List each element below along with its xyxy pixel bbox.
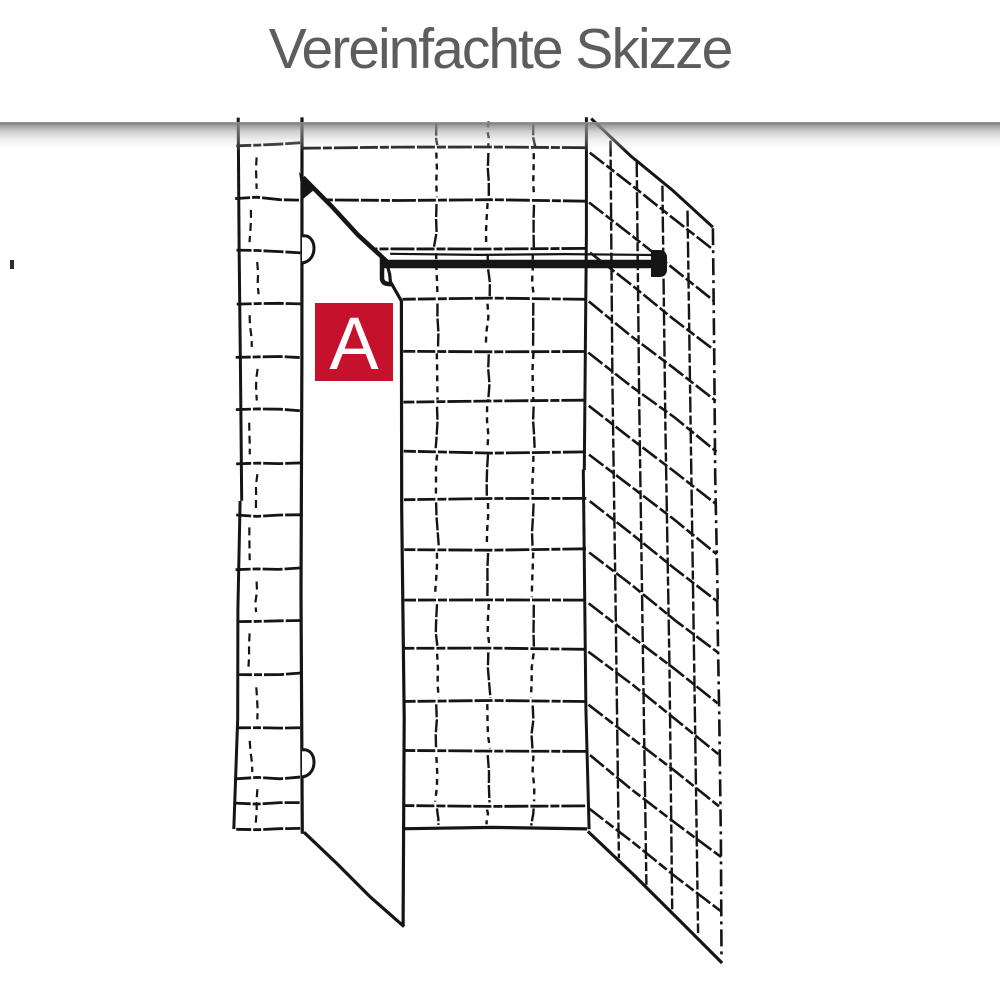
sketch-canvas: A	[0, 0, 1000, 1000]
page: Vereinfachte Skizze A	[0, 0, 1000, 1000]
panel-label: A	[329, 302, 379, 385]
sketch: A	[0, 0, 1000, 1000]
panel-label-badge: A	[315, 302, 393, 385]
scan-speck	[10, 260, 14, 269]
glass-panel	[299, 117, 405, 926]
title-shadow-band	[0, 123, 1000, 152]
